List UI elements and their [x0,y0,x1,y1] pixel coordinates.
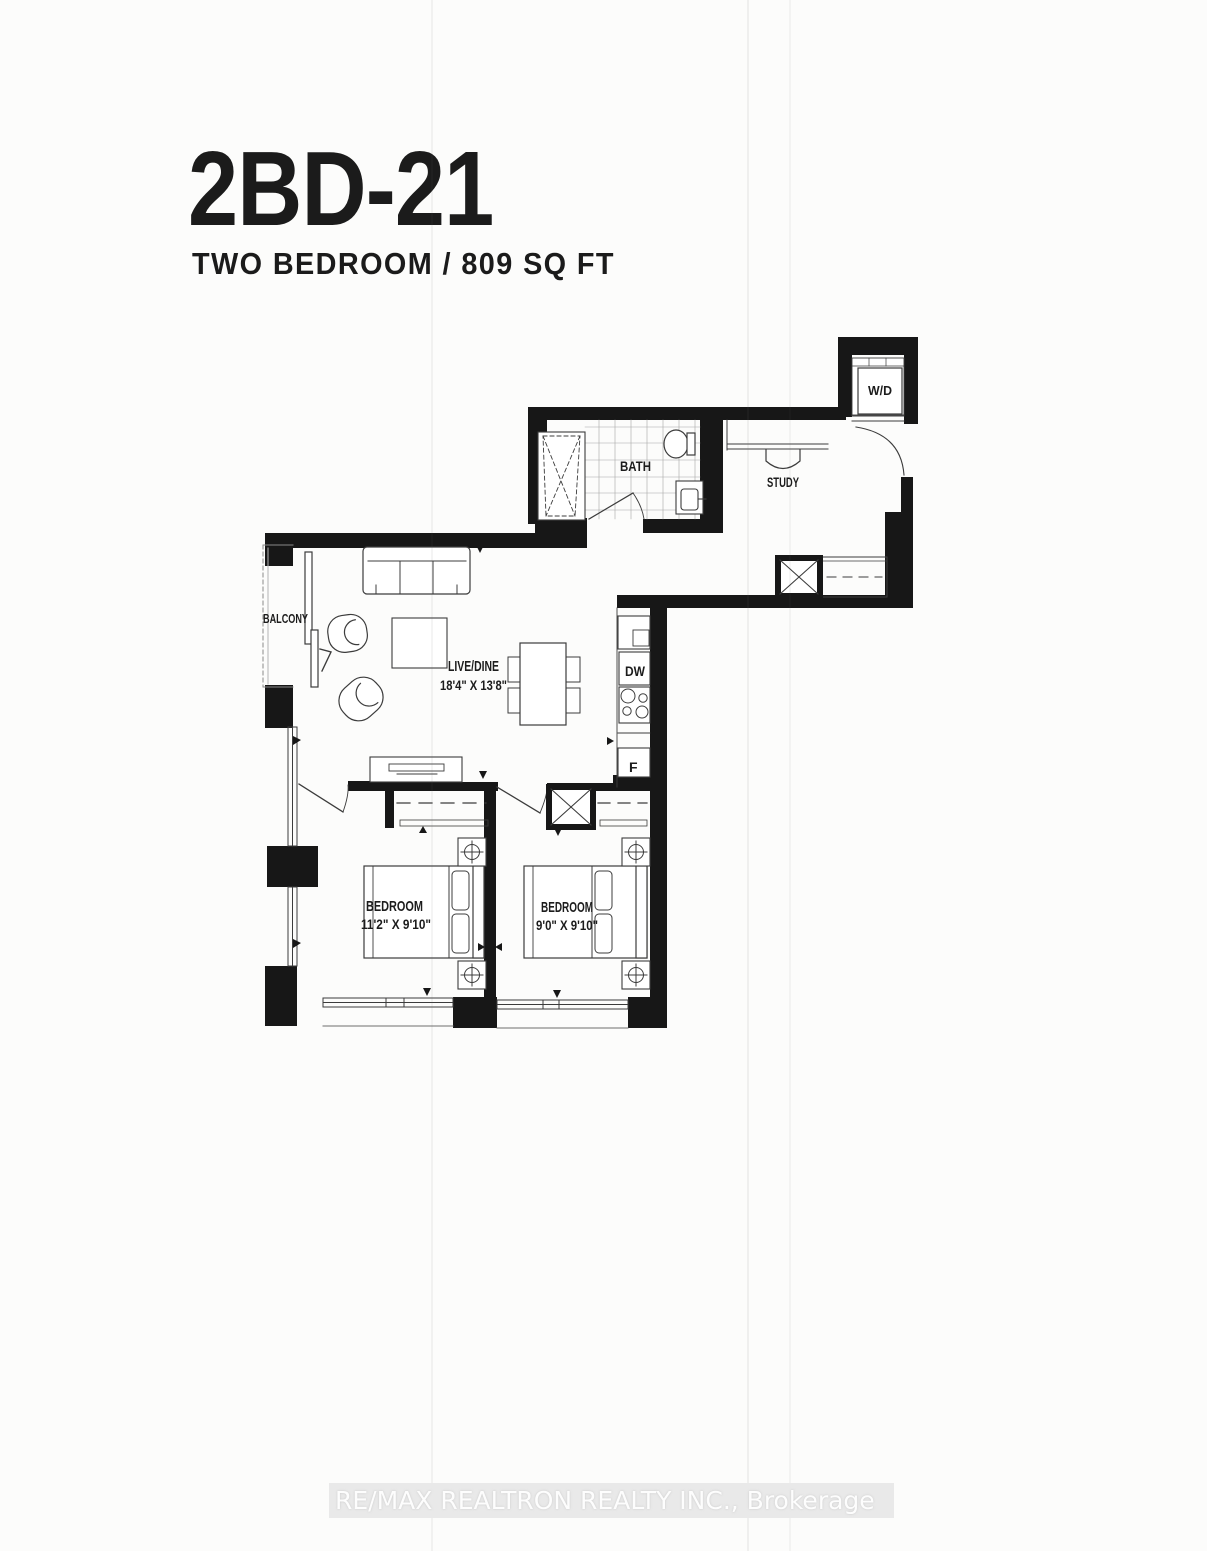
bedroom2-door [497,787,547,813]
armchair-2 [332,670,390,728]
brokerage-watermark: RE/MAX REALTRON REALTY INC., Brokerage [329,1483,894,1518]
bedroom1-dims: 11'2" X 9'10" [361,917,431,932]
wd-label: W/D [868,383,892,398]
bath-sink [676,481,706,514]
entry-x-closet [778,558,820,596]
left-windows [288,727,297,966]
study-label: STUDY [767,474,799,490]
toilet [664,430,695,458]
floor-lamp [320,649,331,671]
bedroom2-label: BEDROOM [541,899,593,916]
floor-plan: BALCONY LIVE/DINE 18'4" X 13'8" BATH STU… [0,0,1207,1551]
floorplan-page: 2BD-21 TWO BEDROOM / 809 SQ FT [0,0,1207,1551]
entry-door [856,427,904,475]
bedroom2-dims: 9'0" X 9'10" [536,918,598,933]
bath-label: BATH [620,459,651,474]
study-desk [727,420,828,469]
dining-set [508,643,580,725]
armchair-1 [326,612,370,654]
bedroom1-closet [397,803,488,826]
dw-label: DW [625,664,645,679]
bedroom1-label: BEDROOM [366,898,423,915]
shower [538,432,585,520]
sofa [363,547,470,594]
bedroom1-door [299,784,348,812]
fridge-label: F [629,759,638,775]
live-dine-dims: 18'4" X 13'8" [440,677,507,693]
credenza [370,757,462,782]
bath-door [589,493,644,519]
bedroom2-closet [598,803,647,826]
entry-closet [822,557,887,597]
coffee-table [392,618,447,668]
linen-closet [549,787,593,827]
live-dine-label: LIVE/DINE [448,658,499,675]
balcony-label: BALCONY [263,611,308,626]
